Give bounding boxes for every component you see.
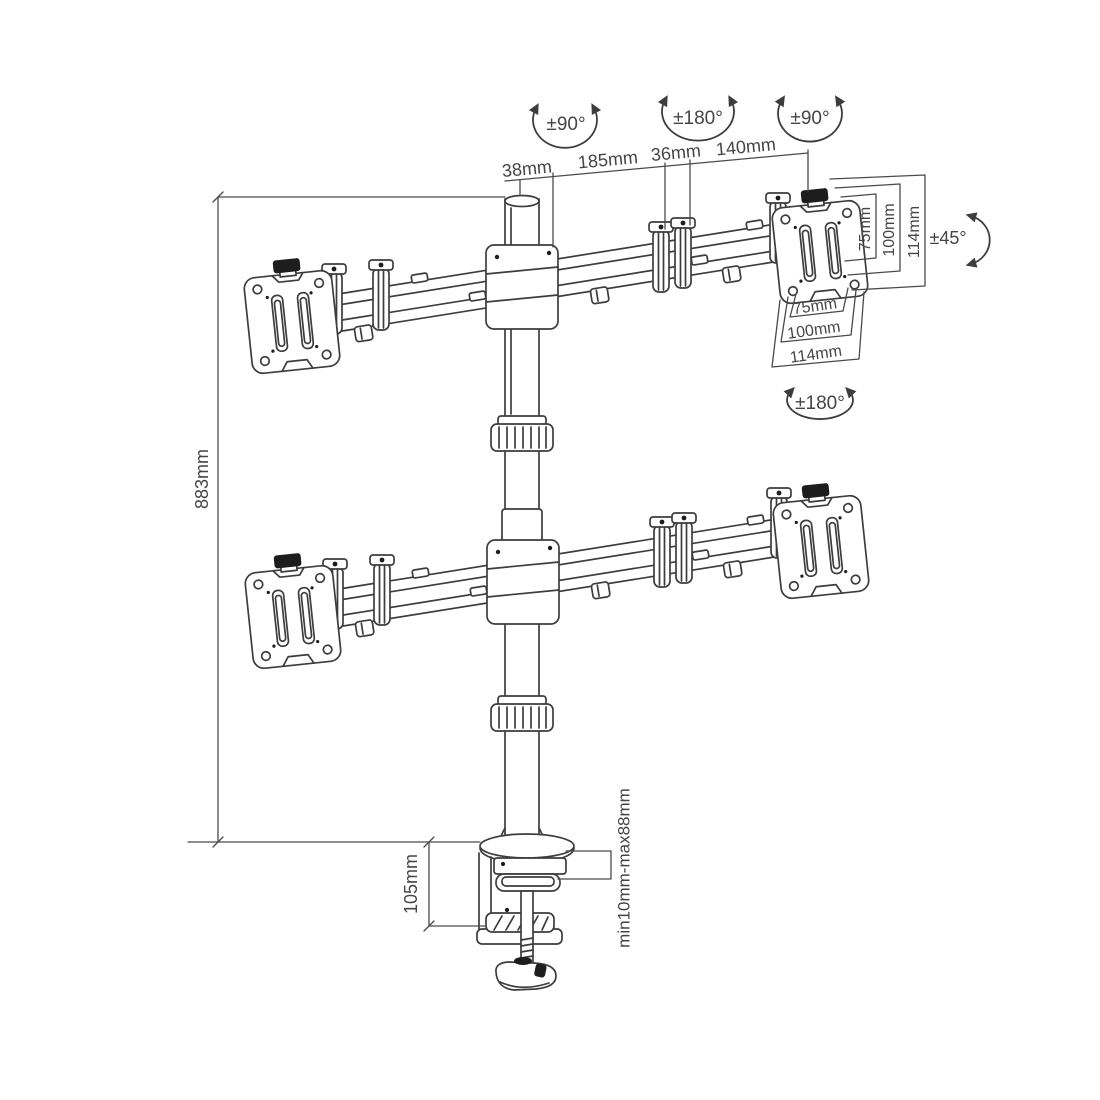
dimension-vesa-bottom: 75mm 100mm 114mm ±180° (772, 288, 864, 419)
dim-36mm-label: 36mm (650, 140, 702, 165)
vesa-swivel-arc-label: ±180° (795, 393, 845, 414)
monitor-mount-technical-drawing: 883mm (0, 0, 1100, 1100)
height-adjust-collar-lower (491, 704, 553, 731)
clamp-range-label: min10mm-max88mm (614, 788, 633, 948)
diagram-canvas: 883mm (0, 0, 1100, 1100)
vesa-side-114-label: 114mm (906, 206, 923, 258)
pole-height-label: 883mm (192, 449, 212, 509)
rotation-arc-left-label: ±90° (546, 114, 585, 135)
dim-185mm-label: 185mm (577, 147, 639, 172)
vesa-side-75-label: 75mm (857, 207, 874, 251)
clamp-screw-handle (496, 957, 556, 990)
rotation-arc-right-label: ±90° (790, 108, 829, 129)
height-adjust-collar (491, 424, 553, 451)
clamp-height-label: 105mm (401, 854, 421, 914)
lower-arm-assembly (243, 480, 870, 670)
desk-clamp (477, 834, 574, 990)
vesa-bottom-100-label: 100mm (786, 319, 841, 343)
vesa-side-100-label: 100mm (881, 203, 898, 256)
dim-140mm-label: 140mm (715, 134, 777, 159)
vesa-bottom-114-label: 114mm (789, 343, 843, 367)
rotation-arc-center-label: ±180° (673, 108, 723, 129)
clamp-lower-jaw (486, 913, 554, 932)
dimension-pole-height: 883mm (188, 192, 505, 847)
tilt-arc-label: ±45° (929, 228, 966, 248)
